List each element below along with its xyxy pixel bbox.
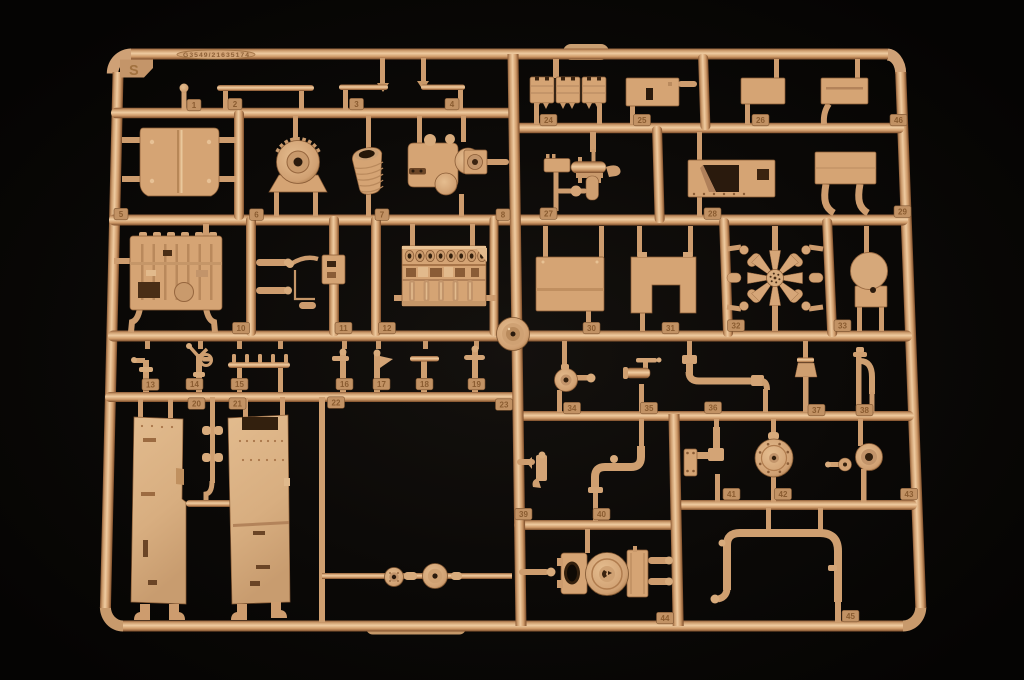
svg-text:32: 32 xyxy=(732,321,741,330)
svg-text:38: 38 xyxy=(860,406,869,415)
svg-text:20: 20 xyxy=(192,399,201,408)
svg-text:11: 11 xyxy=(339,324,348,333)
svg-text:19: 19 xyxy=(472,380,481,389)
svg-text:16: 16 xyxy=(340,380,349,389)
svg-text:45: 45 xyxy=(846,612,855,621)
svg-text:22: 22 xyxy=(332,398,341,407)
svg-text:13: 13 xyxy=(146,380,155,389)
svg-text:4: 4 xyxy=(450,100,455,109)
svg-text:1: 1 xyxy=(192,101,197,110)
svg-text:15: 15 xyxy=(235,380,244,389)
svg-text:26: 26 xyxy=(756,116,765,125)
svg-text:31: 31 xyxy=(666,324,675,333)
svg-text:10: 10 xyxy=(237,324,246,333)
svg-text:33: 33 xyxy=(838,321,847,330)
svg-text:29: 29 xyxy=(898,207,907,216)
svg-text:37: 37 xyxy=(812,406,821,415)
svg-text:6: 6 xyxy=(254,210,259,219)
svg-text:23: 23 xyxy=(500,400,509,409)
svg-text:18: 18 xyxy=(420,380,429,389)
svg-text:S: S xyxy=(129,63,139,79)
svg-text:21: 21 xyxy=(233,399,242,408)
svg-text:24: 24 xyxy=(544,116,553,125)
svg-text:30: 30 xyxy=(587,324,596,333)
svg-text:8: 8 xyxy=(501,210,506,219)
svg-text:46: 46 xyxy=(894,116,903,125)
svg-text:2: 2 xyxy=(233,100,238,109)
svg-text:14: 14 xyxy=(190,380,199,389)
svg-text:25: 25 xyxy=(638,116,647,125)
svg-text:44: 44 xyxy=(661,614,670,623)
svg-text:40: 40 xyxy=(597,510,606,519)
svg-text:7: 7 xyxy=(380,210,385,219)
svg-text:41: 41 xyxy=(727,490,736,499)
svg-text:17: 17 xyxy=(377,380,386,389)
svg-text:34: 34 xyxy=(568,404,577,413)
svg-text:G3549/21635174: G3549/21635174 xyxy=(183,52,249,59)
svg-text:5: 5 xyxy=(119,210,124,219)
svg-text:39: 39 xyxy=(519,510,528,519)
svg-text:27: 27 xyxy=(544,209,553,218)
svg-text:42: 42 xyxy=(779,490,788,499)
svg-text:3: 3 xyxy=(354,100,359,109)
svg-text:28: 28 xyxy=(708,209,717,218)
svg-text:43: 43 xyxy=(905,490,914,499)
svg-text:35: 35 xyxy=(645,404,654,413)
svg-text:12: 12 xyxy=(383,324,392,333)
svg-text:36: 36 xyxy=(709,403,718,412)
